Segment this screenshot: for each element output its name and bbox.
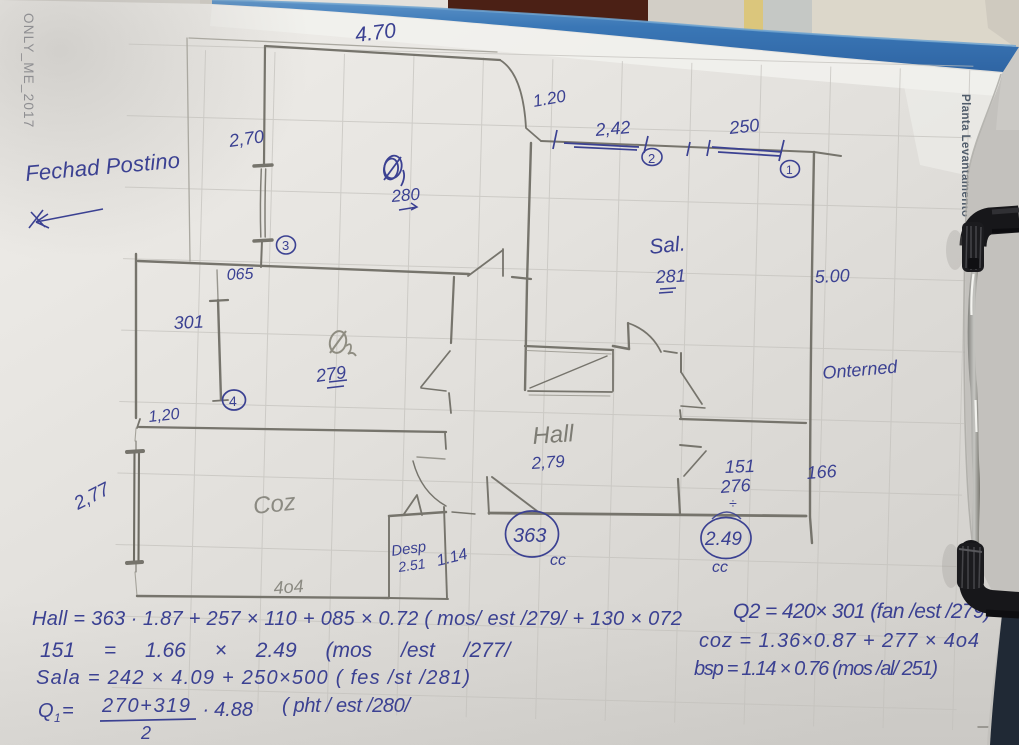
- svg-text:270+319: 270+319: [101, 695, 190, 717]
- svg-text:cc: cc: [712, 559, 728, 576]
- svg-text:=: =: [62, 700, 74, 722]
- svg-text:Hall: Hall: [532, 420, 576, 450]
- svg-text:1,20: 1,20: [148, 406, 181, 426]
- svg-text:301: 301: [173, 311, 204, 333]
- svg-text:÷: ÷: [729, 495, 737, 511]
- svg-text:2: 2: [648, 151, 655, 166]
- svg-text:3: 3: [282, 238, 289, 253]
- svg-text:065: 065: [226, 266, 254, 284]
- svg-text:2: 2: [140, 723, 151, 743]
- svg-text:cc: cc: [550, 552, 566, 569]
- svg-text:276: 276: [719, 475, 752, 497]
- svg-text:5.00: 5.00: [814, 265, 850, 287]
- svg-text:ONLY_ME_2017: ONLY_ME_2017: [21, 13, 36, 128]
- svg-text:151 = 1.66 × 2.49 (mos /est /2: 151 = 1.66 × 2.49 (mos /est /277/: [40, 639, 513, 662]
- svg-text:Q: Q: [38, 700, 54, 722]
- svg-text:151: 151: [724, 456, 755, 477]
- svg-text:280: 280: [390, 185, 421, 207]
- svg-text:( pht / est /280/: ( pht / est /280/: [282, 695, 412, 717]
- svg-text:250: 250: [727, 115, 760, 138]
- svg-text:2.49: 2.49: [704, 529, 742, 550]
- svg-text:coz = 1.36×0.87 + 277 × 4o4: coz = 1.36×0.87 + 277 × 4o4: [699, 630, 979, 652]
- svg-text:1: 1: [54, 711, 61, 725]
- svg-text:281: 281: [654, 265, 686, 287]
- svg-text:4o4: 4o4: [273, 576, 304, 598]
- svg-text:166: 166: [806, 461, 838, 483]
- svg-text:1: 1: [786, 163, 793, 177]
- svg-text:2,42: 2,42: [594, 117, 632, 140]
- svg-text:Hall = 363 ∙ 1.87 + 257 × 110: Hall = 363 ∙ 1.87 + 257 × 110 + 085 × 0.…: [32, 608, 682, 630]
- svg-text:Coz: Coz: [252, 489, 297, 520]
- svg-text:4: 4: [229, 393, 237, 409]
- svg-text:2,79: 2,79: [530, 452, 566, 473]
- svg-text:Sal.: Sal.: [648, 232, 686, 259]
- svg-text:Q2 = 420× 301 (fan /est /279): Q2 = 420× 301 (fan /est /279): [733, 600, 991, 623]
- svg-text:bsp = 1.14 × 0.76 (mos /al/ 25: bsp = 1.14 × 0.76 (mos /al/ 251): [694, 658, 938, 680]
- svg-text:363: 363: [513, 525, 546, 547]
- svg-text:∙ 4.88: ∙ 4.88: [203, 699, 253, 721]
